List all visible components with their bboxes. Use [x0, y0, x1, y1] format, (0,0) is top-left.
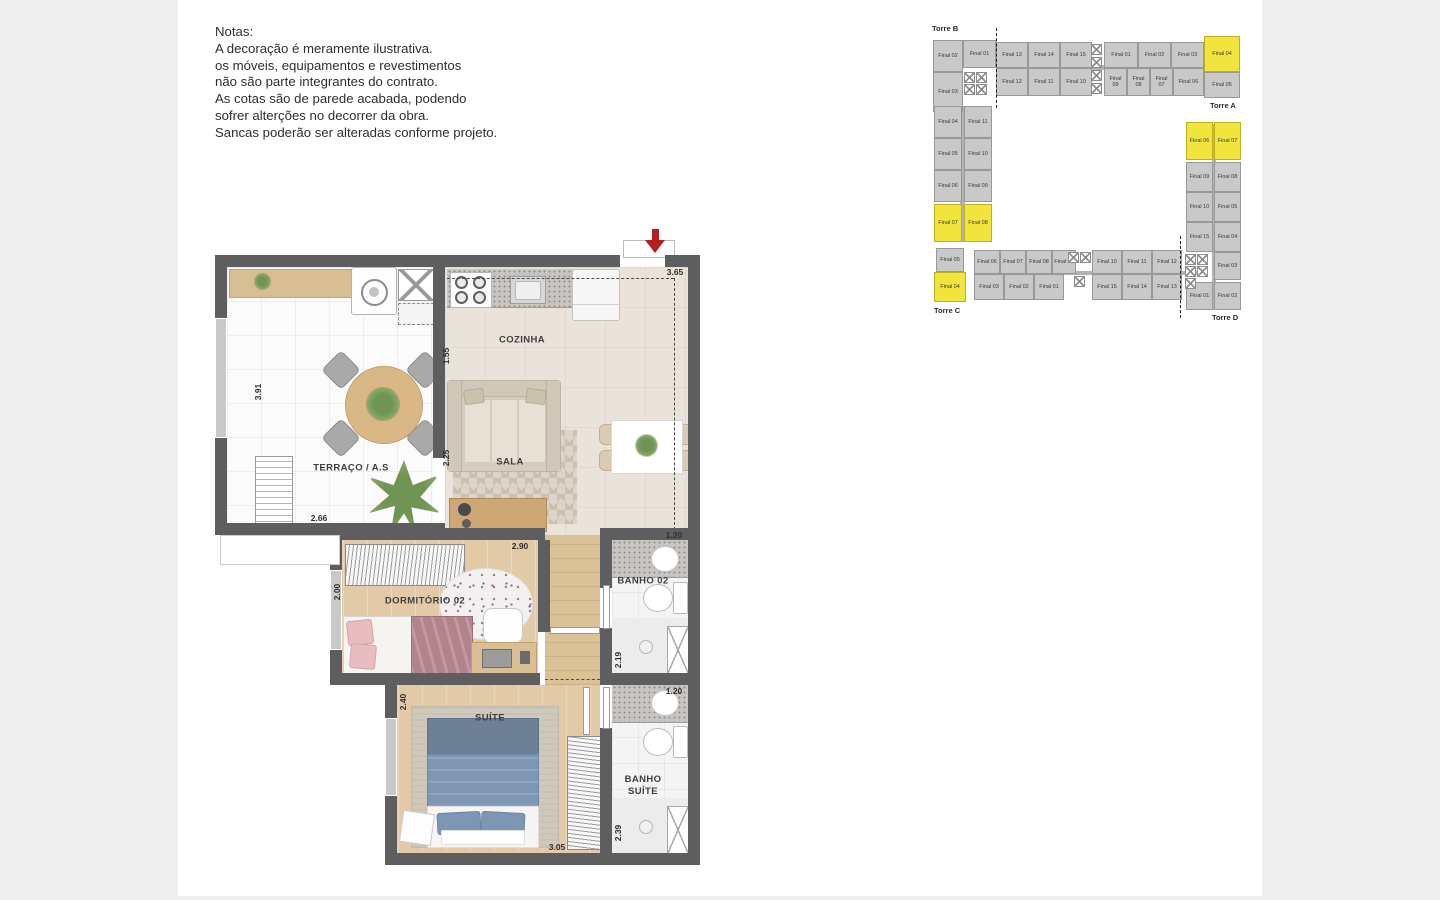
key-plan-unit: Final 05	[1214, 192, 1241, 222]
dim-entry: 3.65	[667, 267, 684, 277]
key-plan-unit: Final 04	[934, 106, 962, 138]
sofa-cushion	[491, 399, 518, 463]
table-plant	[367, 388, 399, 420]
room-label-banho2: BANHO 02	[617, 576, 668, 587]
fridge	[572, 269, 620, 321]
key-plan-tower-label: Torre B	[932, 24, 958, 33]
elevator-icon	[1185, 278, 1196, 289]
key-plan-unit: Final 08	[1127, 68, 1150, 96]
suite-door-leaf	[583, 687, 590, 735]
elevator-icon	[964, 72, 975, 83]
banho-suite-toilet	[643, 728, 673, 756]
banho-suite-door-leaf	[603, 687, 610, 729]
wall-segment	[330, 528, 545, 540]
banho2-toilet-tank	[673, 582, 688, 614]
banho2-drain	[639, 640, 653, 654]
dorm2-blanket	[411, 616, 473, 676]
key-plan-unit: Final 11	[964, 106, 992, 138]
dining-plant	[636, 435, 657, 456]
banho2-basin	[651, 546, 679, 572]
key-plan-unit: Final 06	[974, 250, 1000, 274]
key-plan-unit-highlighted: Final 04	[934, 272, 966, 302]
key-plan-unit: Final 15	[1186, 222, 1213, 252]
room-label-banho-suite: BANHO SUÍTE	[611, 774, 675, 798]
kitchen-sink	[510, 276, 546, 304]
notes-line: Sancas poderão ser alteradas conforme pr…	[215, 125, 497, 142]
key-plan-unit: Final 01	[963, 40, 996, 68]
terraco-planter	[220, 535, 340, 565]
banho-suite-shower-glass	[667, 806, 689, 854]
dim-terraco-h: 3.91	[253, 384, 263, 401]
terraco-counter	[229, 269, 353, 298]
elevator-icon	[1091, 44, 1102, 55]
key-plan-unit: Final 08	[1214, 162, 1241, 192]
dorm2-window	[330, 570, 342, 650]
key-plan-unit: Final 15	[1092, 274, 1122, 300]
tanque-dashed	[398, 303, 434, 325]
sanca-dashed-line	[674, 278, 675, 535]
elevator-icon	[1091, 83, 1102, 94]
key-plan-unit: Final 07	[1150, 68, 1173, 96]
threshold-dashed-line	[545, 679, 600, 680]
banho2-door-leaf	[603, 585, 610, 629]
elevator-icon	[1197, 266, 1208, 277]
key-plan-unit: Final 10	[1186, 192, 1213, 222]
key-plan-unit: Final 02	[933, 40, 963, 72]
key-plan-unit-highlighted: Final 07	[934, 204, 962, 242]
key-plan-tower-label: Torre A	[1210, 101, 1236, 110]
suite-sidetable	[399, 810, 435, 846]
key-plan-tower-label: Torre D	[1212, 313, 1238, 322]
elevator-icon	[1185, 254, 1196, 265]
notes-block: Notas: A decoração é meramente ilustrati…	[215, 24, 497, 142]
room-label-sala: SALA	[496, 457, 523, 468]
key-plan-unit: Final 11	[1028, 68, 1060, 96]
speaker	[458, 503, 471, 516]
banho-suite-toilet-tank	[673, 726, 688, 758]
key-plan-section-dash	[1180, 236, 1181, 318]
suite-window	[385, 718, 397, 796]
desk-item	[520, 651, 530, 664]
key-plan-unit: Final 08	[1026, 250, 1052, 274]
dorm2-pillow	[349, 643, 377, 670]
hall-floor	[545, 535, 600, 685]
sink-tub	[515, 281, 541, 300]
dorm2-door-leaf	[550, 627, 600, 634]
elevator-icon	[976, 84, 987, 95]
sofa-cushion	[518, 399, 546, 463]
key-plan-unit: Final 05	[934, 138, 962, 170]
wall-segment	[538, 540, 550, 632]
banho2-shower-glass	[667, 626, 689, 674]
desk-chair	[483, 608, 523, 644]
terraco-window	[215, 318, 227, 438]
notes-line: os móveis, equipamentos e revestimentos	[215, 58, 497, 75]
key-plan-unit: Final 10	[1092, 250, 1122, 274]
elevator-icon	[1074, 276, 1085, 287]
dim-cozinha: 1.55	[441, 348, 451, 365]
key-plan-unit: Final 14	[1122, 274, 1152, 300]
key-plan-unit: Final 13	[1152, 274, 1182, 300]
dim-banho2-w: 1.20	[666, 530, 683, 540]
key-plan-unit-highlighted: Final 08	[964, 204, 992, 242]
wall-segment	[600, 628, 612, 673]
key-plan-unit: Final 02	[1004, 274, 1034, 300]
key-plan-unit: Final 13	[996, 42, 1028, 68]
key-plan-tower-label: Torre C	[934, 306, 960, 315]
dim-dorm2-left: 2.00	[332, 584, 342, 601]
suite-bed-foot	[427, 718, 539, 756]
ac-unit	[255, 456, 293, 528]
wall-segment	[600, 528, 612, 588]
wall-segment	[330, 673, 540, 685]
wall-segment	[688, 255, 700, 865]
key-plan-unit: Final 03	[1214, 252, 1241, 280]
tv-console	[449, 498, 547, 532]
elevator-icon	[1091, 70, 1102, 81]
sofa-pillow	[525, 388, 547, 405]
dim-banho-suite-w: 1.20	[666, 686, 683, 696]
washer-hub	[369, 287, 379, 297]
key-plan-unit: Final 07	[1000, 250, 1026, 274]
banho-suite-drain	[639, 820, 653, 834]
key-plan-section-dash	[996, 28, 997, 108]
notes-line: não são parte integrantes do contrato.	[215, 74, 497, 91]
suite-pillow-white	[441, 830, 525, 845]
key-plan-unit: Final 15	[1060, 42, 1092, 68]
key-plan-unit-highlighted: Final 07	[1214, 122, 1241, 160]
room-label-cozinha: COZINHA	[499, 335, 545, 346]
dim-dorm2-w: 2.90	[512, 541, 529, 551]
burner	[455, 291, 468, 304]
dim-sala: 2.25	[441, 450, 451, 467]
key-plan-unit: Final 10	[1060, 68, 1092, 96]
dorm2-pillow	[346, 619, 374, 647]
key-plan-unit: Final 05	[1204, 72, 1240, 98]
room-label-suite: SUÍTE	[475, 713, 505, 724]
elevator-icon	[1197, 254, 1208, 265]
key-plan-unit: Final 06	[1173, 68, 1204, 96]
key-plan-unit: Final 09	[964, 170, 992, 202]
dim-banho2-h: 2.19	[613, 652, 623, 669]
notes-line: sofrer alterções no decorrer da obra.	[215, 108, 497, 125]
elevator-icon	[1080, 252, 1091, 263]
laptop	[482, 649, 512, 668]
dim-suite-w: 3.05	[549, 842, 566, 852]
key-plan-unit-highlighted: Final 04	[1204, 36, 1240, 72]
key-plan-unit: Final 09	[1186, 162, 1213, 192]
entrance-arrow-icon	[645, 240, 665, 253]
key-plan-unit-highlighted: Final 06	[1186, 122, 1213, 160]
dorm2-wardrobe	[345, 544, 465, 586]
elevator-icon	[976, 72, 987, 83]
key-plan: Final 02Final 01Final 13Final 14Final 15…	[930, 22, 1248, 322]
suite-bed-duvet	[427, 754, 539, 808]
tanque-hatch	[398, 269, 434, 301]
key-plan-unit: Final 02	[1138, 42, 1171, 68]
speaker	[462, 519, 471, 528]
key-plan-unit: Final 01	[1104, 42, 1138, 68]
elevator-icon	[964, 84, 975, 95]
elevator-icon	[1068, 252, 1079, 263]
wall-segment	[600, 673, 688, 685]
banho2-toilet	[643, 584, 673, 612]
room-label-terraco: TERRAÇO / A.S	[313, 463, 389, 474]
desk	[471, 642, 537, 676]
wall-segment	[385, 853, 700, 865]
dim-suite-h: 2.40	[398, 694, 408, 711]
burner	[473, 291, 486, 304]
key-plan-unit: Final 03	[1171, 42, 1204, 68]
key-plan-unit: Final 04	[1214, 222, 1241, 252]
sofa-cushion	[464, 399, 491, 463]
sanca-dashed-line	[447, 278, 674, 279]
key-plan-unit: Final 14	[1028, 42, 1060, 68]
plant-small	[255, 274, 270, 289]
key-plan-unit: Final 01	[1034, 274, 1064, 300]
notes-title: Notas:	[215, 24, 497, 41]
key-plan-unit: Final 12	[1152, 250, 1182, 274]
fridge-divider	[573, 304, 619, 305]
notes-line: As cotas são de parede acabada, podendo	[215, 91, 497, 108]
key-plan-unit: Final 11	[1122, 250, 1152, 274]
dim-banho-suite-h: 2.39	[613, 825, 623, 842]
elevator-icon	[1091, 57, 1102, 68]
notes-line: A decoração é meramente ilustrativa.	[215, 41, 497, 58]
room-label-dormitorio2: DORMITÓRIO 02	[385, 596, 465, 607]
sofa-arm	[546, 381, 560, 471]
page: { "notes": { "title": "Notas:", "lines":…	[0, 0, 1440, 900]
floor-plan: TERRAÇO / A.S COZINHA SALA DORMITÓRIO 02…	[215, 228, 707, 892]
key-plan-unit: Final 12	[996, 68, 1028, 96]
washing-machine	[351, 267, 397, 315]
key-plan-unit: Final 05	[936, 248, 964, 272]
key-plan-unit: Final 06	[934, 170, 962, 202]
wall-segment	[215, 255, 620, 267]
dim-terraco-w: 2.66	[311, 513, 328, 523]
elevator-icon	[1185, 266, 1196, 277]
key-plan-unit: Final 09	[1104, 68, 1127, 96]
key-plan-unit: Final 03	[974, 274, 1004, 300]
key-plan-unit: Final 02	[1214, 282, 1241, 310]
key-plan-unit: Final 10	[964, 138, 992, 170]
sofa-pillow	[463, 388, 485, 406]
